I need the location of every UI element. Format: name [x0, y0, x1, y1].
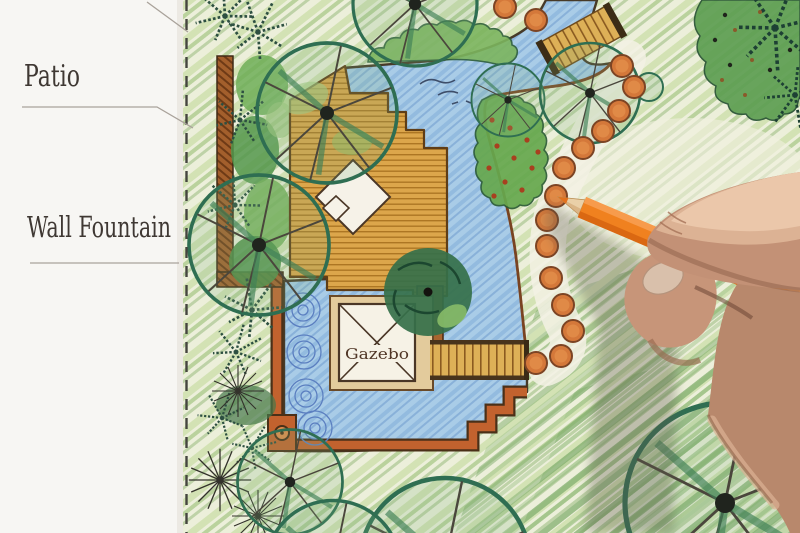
garden-plan-photo: Gazebo	[0, 0, 800, 533]
tree-symbol	[472, 64, 545, 137]
tree-symbol	[257, 43, 397, 183]
tree-symbol	[189, 175, 329, 315]
dense-tree	[384, 248, 472, 336]
plan-drawing: Gazebo	[0, 0, 800, 533]
patio-label: Patio	[24, 59, 80, 94]
gazebo-label: Gazebo	[345, 345, 409, 363]
boardwalk	[430, 340, 529, 380]
wall-fountain-label: Wall Fountain	[27, 210, 171, 244]
paper-edge-shade	[177, 0, 183, 533]
